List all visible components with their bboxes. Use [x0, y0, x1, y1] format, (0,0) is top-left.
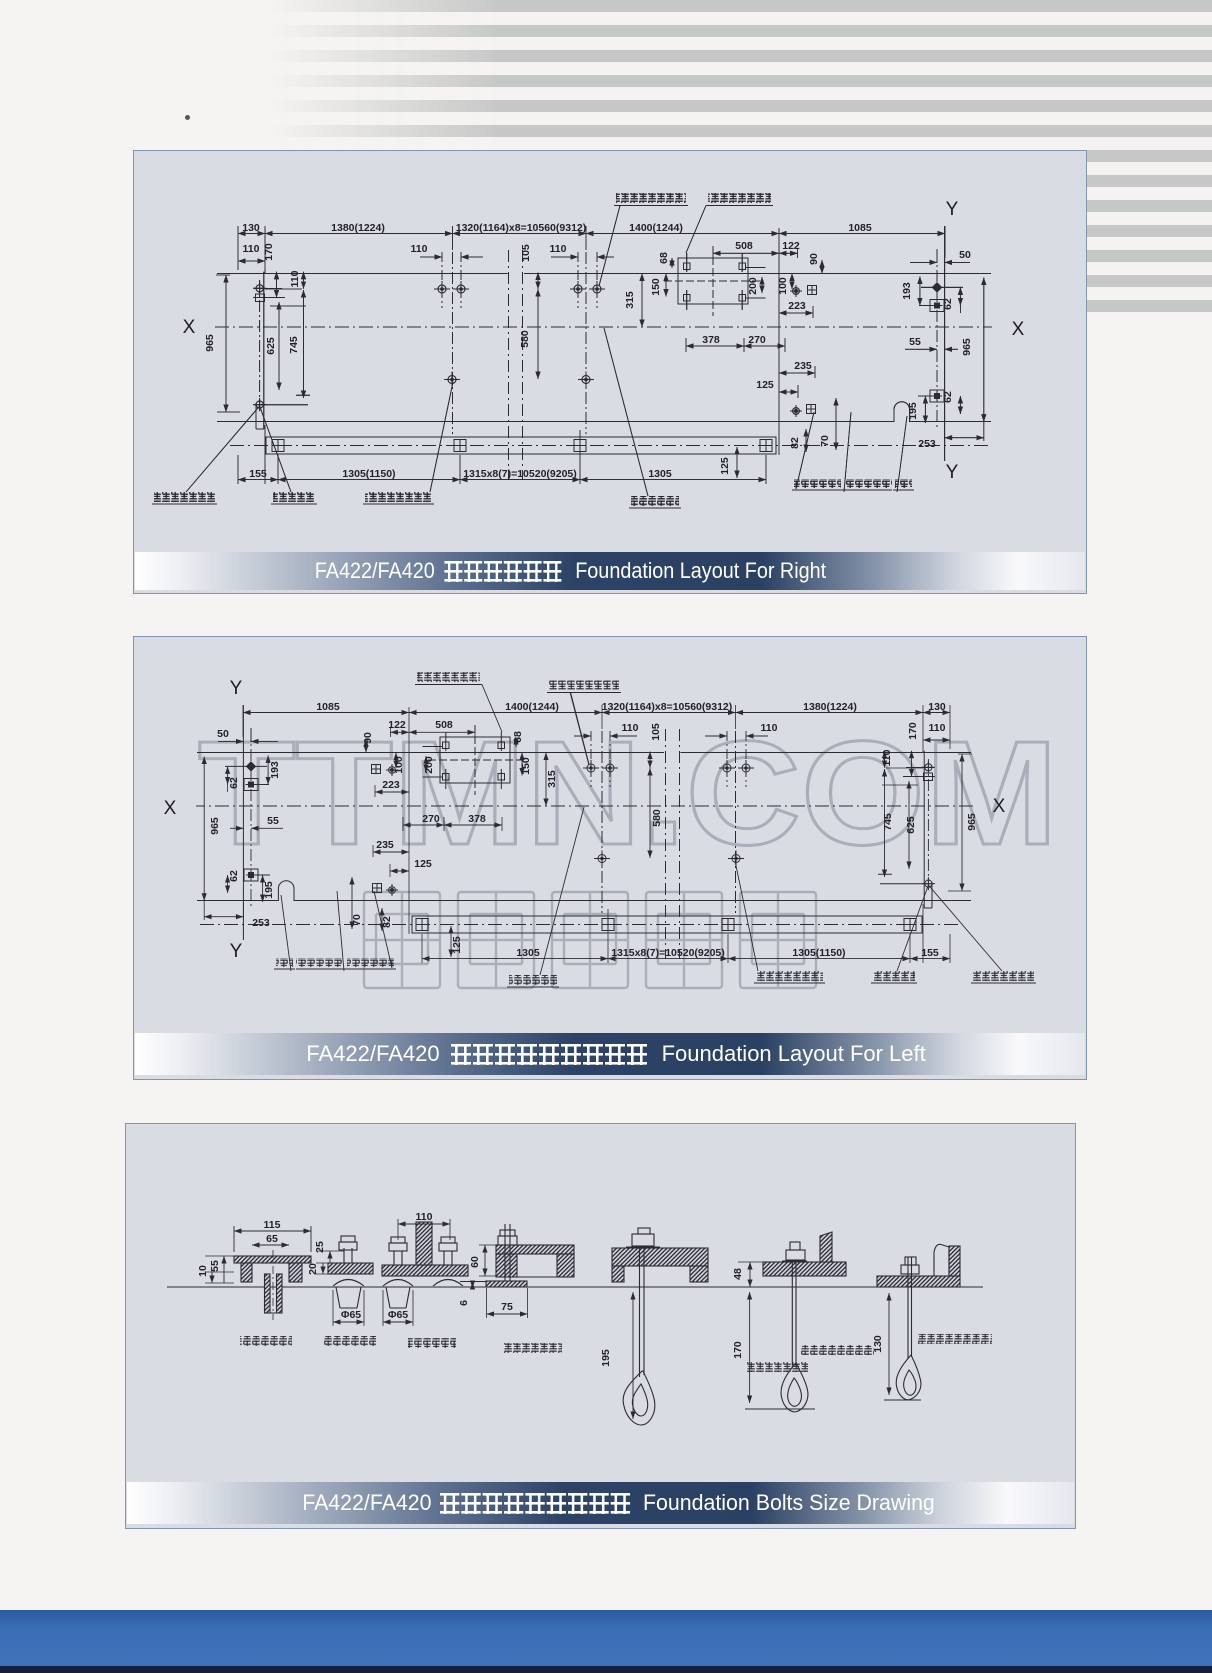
- svg-text:X: X: [993, 796, 1006, 817]
- svg-text:235: 235: [794, 360, 812, 372]
- svg-text:580: 580: [519, 330, 531, 348]
- svg-text:100: 100: [777, 277, 789, 295]
- svg-text:508: 508: [435, 719, 453, 731]
- svg-text:580: 580: [651, 809, 663, 827]
- svg-text:90: 90: [362, 732, 374, 744]
- svg-text:Y: Y: [946, 462, 959, 483]
- svg-text:1320(1164)x8=10560(9312): 1320(1164)x8=10560(9312): [456, 222, 587, 234]
- svg-text:1305: 1305: [648, 468, 672, 480]
- svg-text:625: 625: [265, 337, 277, 355]
- svg-text:Y: Y: [230, 941, 243, 962]
- svg-text:110: 110: [289, 270, 301, 287]
- svg-text:965: 965: [966, 813, 978, 831]
- svg-text:235: 235: [376, 839, 394, 851]
- svg-text:X: X: [1012, 319, 1025, 340]
- svg-text:200: 200: [747, 277, 759, 295]
- svg-text:70: 70: [819, 435, 831, 447]
- svg-text:75: 75: [501, 1301, 513, 1313]
- svg-text:125: 125: [719, 457, 731, 475]
- svg-text:65: 65: [266, 1233, 278, 1245]
- svg-text:223: 223: [382, 779, 400, 791]
- svg-text:378: 378: [468, 813, 486, 825]
- svg-text:110: 110: [411, 243, 428, 255]
- svg-text:110: 110: [761, 722, 778, 734]
- svg-text:Y: Y: [230, 678, 243, 699]
- svg-text:110: 110: [243, 243, 260, 255]
- svg-text:122: 122: [388, 719, 406, 731]
- svg-text:105: 105: [520, 244, 532, 262]
- svg-text:62: 62: [942, 298, 954, 310]
- svg-text:X: X: [164, 798, 177, 819]
- svg-text:170: 170: [732, 1341, 744, 1359]
- svg-text:122: 122: [782, 240, 800, 252]
- svg-text:125: 125: [414, 858, 432, 870]
- svg-text:170: 170: [907, 722, 919, 740]
- svg-text:68: 68: [658, 252, 670, 264]
- svg-text:1305: 1305: [516, 947, 540, 959]
- svg-text:270: 270: [422, 813, 440, 825]
- svg-text:Φ65: Φ65: [388, 1309, 408, 1321]
- svg-text:115: 115: [264, 1219, 281, 1231]
- svg-text:20: 20: [307, 1263, 319, 1275]
- svg-text:965: 965: [204, 334, 216, 352]
- svg-text:110: 110: [622, 722, 639, 734]
- svg-text:X: X: [183, 317, 196, 338]
- svg-text:200: 200: [423, 756, 435, 774]
- svg-text:130: 130: [928, 701, 946, 713]
- svg-text:1400(1244): 1400(1244): [629, 222, 683, 234]
- svg-text:150: 150: [650, 278, 662, 296]
- svg-text:82: 82: [381, 916, 393, 928]
- svg-text:55: 55: [209, 1260, 221, 1272]
- svg-text:10: 10: [197, 1265, 209, 1277]
- svg-text:1320(1164)x8=10560(9312): 1320(1164)x8=10560(9312): [602, 701, 733, 713]
- svg-text:745: 745: [288, 336, 300, 354]
- svg-text:68: 68: [512, 731, 524, 743]
- svg-text:170: 170: [263, 243, 275, 261]
- svg-text:155: 155: [249, 468, 267, 480]
- svg-text:110: 110: [550, 243, 567, 255]
- svg-text:315: 315: [624, 291, 636, 309]
- svg-text:155: 155: [921, 947, 939, 959]
- svg-text:1085: 1085: [848, 222, 872, 234]
- svg-text:195: 195: [907, 402, 919, 420]
- svg-text:223: 223: [788, 300, 806, 312]
- svg-text:130: 130: [872, 1335, 884, 1353]
- svg-text:195: 195: [263, 881, 275, 899]
- svg-text:1085: 1085: [316, 701, 340, 713]
- svg-text:508: 508: [735, 240, 753, 252]
- svg-text:1305(1150): 1305(1150): [342, 468, 395, 480]
- svg-text:193: 193: [901, 282, 913, 300]
- svg-text:1315x8(7)=10520(9205): 1315x8(7)=10520(9205): [611, 947, 725, 959]
- svg-text:378: 378: [702, 334, 720, 346]
- svg-text:62: 62: [228, 870, 240, 882]
- svg-text:965: 965: [961, 338, 973, 356]
- svg-text:90: 90: [808, 253, 820, 265]
- svg-text:100: 100: [393, 756, 405, 774]
- svg-text:110: 110: [416, 1211, 433, 1223]
- svg-text:125: 125: [451, 936, 463, 954]
- svg-text:55: 55: [267, 815, 279, 827]
- svg-text:193: 193: [269, 761, 281, 779]
- svg-text:62: 62: [942, 391, 954, 403]
- svg-text:48: 48: [732, 1268, 744, 1280]
- svg-text:70: 70: [351, 914, 363, 926]
- svg-text:125: 125: [756, 379, 774, 391]
- svg-text:55: 55: [909, 336, 921, 348]
- svg-text:270: 270: [748, 334, 766, 346]
- svg-text:253: 253: [252, 917, 270, 929]
- svg-text:50: 50: [959, 249, 971, 261]
- svg-text:6: 6: [458, 1300, 470, 1306]
- svg-text:105: 105: [650, 723, 662, 741]
- svg-text:253: 253: [918, 438, 936, 450]
- svg-text:965: 965: [209, 817, 221, 835]
- svg-text:62: 62: [228, 777, 240, 789]
- svg-text:110: 110: [881, 749, 893, 766]
- svg-text:82: 82: [789, 437, 801, 449]
- svg-text:1305(1150): 1305(1150): [792, 947, 845, 959]
- svg-text:60: 60: [469, 1256, 481, 1268]
- svg-text:1315x8(7)=10520(9205): 1315x8(7)=10520(9205): [463, 468, 577, 480]
- svg-text:50: 50: [217, 728, 229, 740]
- svg-text:195: 195: [600, 1349, 612, 1367]
- svg-text:Y: Y: [946, 199, 959, 220]
- svg-text:25: 25: [314, 1241, 326, 1253]
- svg-text:745: 745: [882, 813, 894, 831]
- svg-text:1380(1224): 1380(1224): [331, 222, 385, 234]
- svg-text:625: 625: [905, 816, 917, 834]
- svg-text:1400(1244): 1400(1244): [505, 701, 559, 713]
- svg-text:Φ65: Φ65: [341, 1309, 361, 1321]
- svg-text:150: 150: [520, 757, 532, 775]
- svg-text:1380(1224): 1380(1224): [803, 701, 857, 713]
- svg-text:130: 130: [242, 222, 260, 234]
- svg-text:315: 315: [546, 770, 558, 788]
- svg-text:110: 110: [929, 722, 946, 734]
